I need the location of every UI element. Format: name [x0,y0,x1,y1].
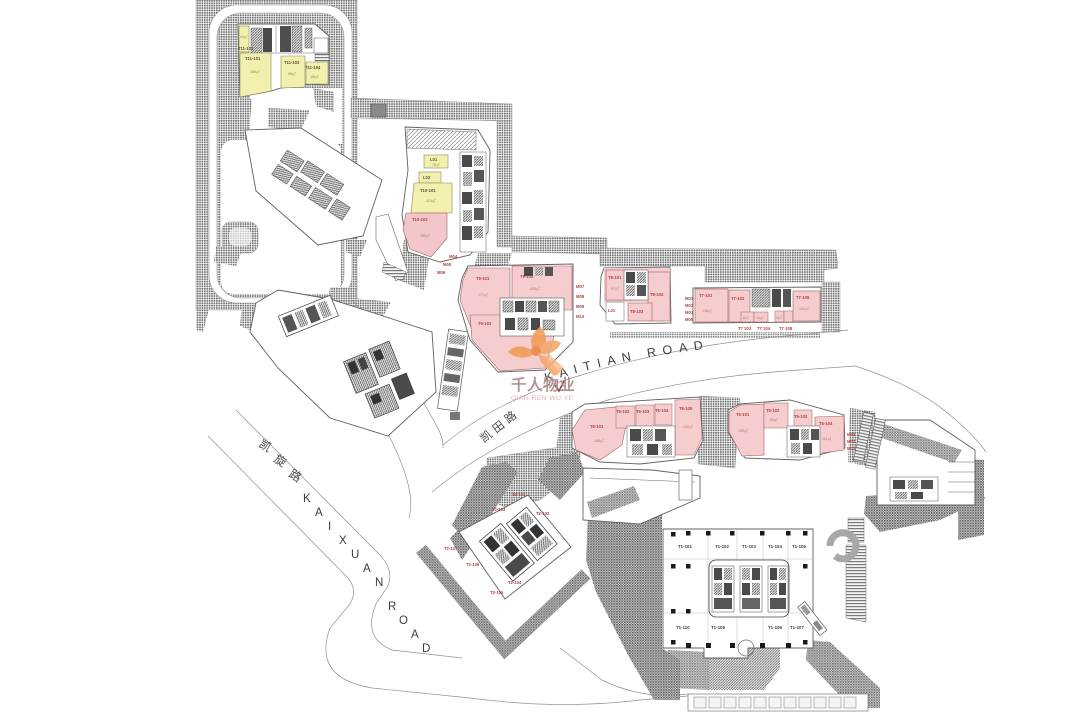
svg-text:QIAN REN WU YE: QIAN REN WU YE [511,395,574,402]
svg-text:T11-104: T11-104 [305,65,321,70]
svg-text:165㎡: 165㎡ [420,233,430,238]
svg-text:R: R [388,601,396,613]
svg-text:M05: M05 [685,317,694,322]
svg-text:14㎡: 14㎡ [756,315,764,320]
svg-text:139㎡: 139㎡ [738,428,748,433]
svg-text:3㎡: 3㎡ [776,315,782,320]
svg-text:T6-104: T6-104 [655,408,669,413]
svg-text:T11-101: T11-101 [245,56,261,61]
svg-text:T6-103: T6-103 [636,409,650,414]
svg-text:N: N [375,577,383,589]
svg-text:T7 104: T7 104 [757,326,771,331]
svg-text:T1-103: T1-103 [742,544,756,549]
svg-text:A: A [363,563,371,575]
svg-text:T2-102: T2-102 [536,511,550,516]
svg-text:6㎡: 6㎡ [743,315,749,320]
svg-text:T7-102: T7-102 [731,296,745,301]
svg-text:T8-103: T8-103 [630,309,644,314]
svg-text:M08: M08 [576,294,585,299]
svg-text:D: D [422,643,430,655]
svg-text:M05: M05 [443,262,452,267]
svg-text:T1-105: T1-105 [792,544,806,549]
svg-text:I: I [328,521,331,533]
svg-text:T9-103: T9-103 [478,321,492,326]
svg-text:T1-101: T1-101 [678,544,692,549]
svg-text:405㎡: 405㎡ [530,286,540,291]
svg-text:196㎡: 196㎡ [594,438,604,443]
svg-text:A: A [315,507,323,519]
svg-text:T5-101: T5-101 [736,412,750,417]
svg-text:X: X [339,535,347,547]
svg-text:L01: L01 [430,157,438,162]
svg-text:T2-107: T2-107 [444,546,458,551]
svg-text:U: U [351,549,359,561]
svg-text:M02: M02 [847,439,856,444]
svg-text:M04: M04 [449,254,458,259]
svg-text:T5-102: T5-102 [766,408,780,413]
svg-text:T6-105: T6-105 [679,406,693,411]
svg-text:T6-101: T6-101 [590,424,604,429]
svg-text:T5-104: T5-104 [819,421,833,426]
svg-text:96㎡: 96㎡ [288,71,296,76]
svg-text:T11-103: T11-103 [284,60,300,65]
svg-text:T7-101: T7-101 [699,293,713,298]
svg-text:M02: M02 [685,303,694,308]
svg-text:T2-103: T2-103 [492,507,506,512]
svg-text:M03: M03 [685,310,694,315]
svg-text:85㎡: 85㎡ [311,74,319,79]
svg-text:T1-104: T1-104 [768,544,782,549]
svg-text:97㎡: 97㎡ [611,286,619,291]
svg-text:141㎡: 141㎡ [799,306,809,311]
svg-text:T9-101: T9-101 [476,276,490,281]
svg-text:T1-106: T1-106 [768,625,782,630]
svg-text:115㎡: 115㎡ [426,198,436,203]
svg-text:T2-104: T2-104 [508,580,522,585]
svg-text:T2-105: T2-105 [490,590,504,595]
svg-text:T1-110: T1-110 [676,625,690,630]
svg-text:T7 108: T7 108 [779,326,793,331]
svg-text:138㎡: 138㎡ [702,308,712,313]
svg-text:T8-101: T8-101 [608,275,622,280]
svg-text:83㎡: 83㎡ [770,417,778,422]
svg-text:T11-102: T11-102 [238,46,254,51]
svg-text:111㎡: 111㎡ [822,436,831,441]
svg-text:T10-102: T10-102 [412,217,428,222]
svg-text:177㎡: 177㎡ [478,292,488,297]
svg-text:T10-101: T10-101 [420,188,436,193]
svg-text:T1-102: T1-102 [715,544,729,549]
svg-text:M01: M01 [847,432,856,437]
svg-text:44㎡: 44㎡ [240,34,248,39]
svg-text:A: A [411,629,419,641]
svg-text:T2-106: T2-106 [466,562,480,567]
svg-text:T1-109: T1-109 [711,625,725,630]
svg-text:K: K [303,493,311,505]
svg-text:T5-103: T5-103 [794,414,808,419]
svg-text:O: O [399,615,408,627]
svg-text:M01: M01 [685,296,694,301]
svg-text:186㎡: 186㎡ [250,69,260,74]
svg-text:M09: M09 [576,304,585,309]
svg-text:M10: M10 [576,314,585,319]
svg-text:75㎡: 75㎡ [432,162,440,167]
svg-text:千人物业: 千人物业 [511,375,575,394]
svg-text:L02: L02 [423,175,431,180]
svg-text:T1-107: T1-107 [790,625,804,630]
svg-text:T8-104: T8-104 [650,292,664,297]
svg-text:T6-102: T6-102 [616,409,630,414]
svg-text:T7-109: T7-109 [796,295,810,300]
svg-text:T2-101: T2-101 [512,492,526,497]
svg-text:M06: M06 [437,270,446,275]
svg-text:M03: M03 [847,446,856,451]
svg-text:130㎡: 130㎡ [683,424,693,429]
svg-text:T7 103: T7 103 [738,326,752,331]
svg-text:L01: L01 [608,308,616,313]
svg-text:M07: M07 [576,284,585,289]
